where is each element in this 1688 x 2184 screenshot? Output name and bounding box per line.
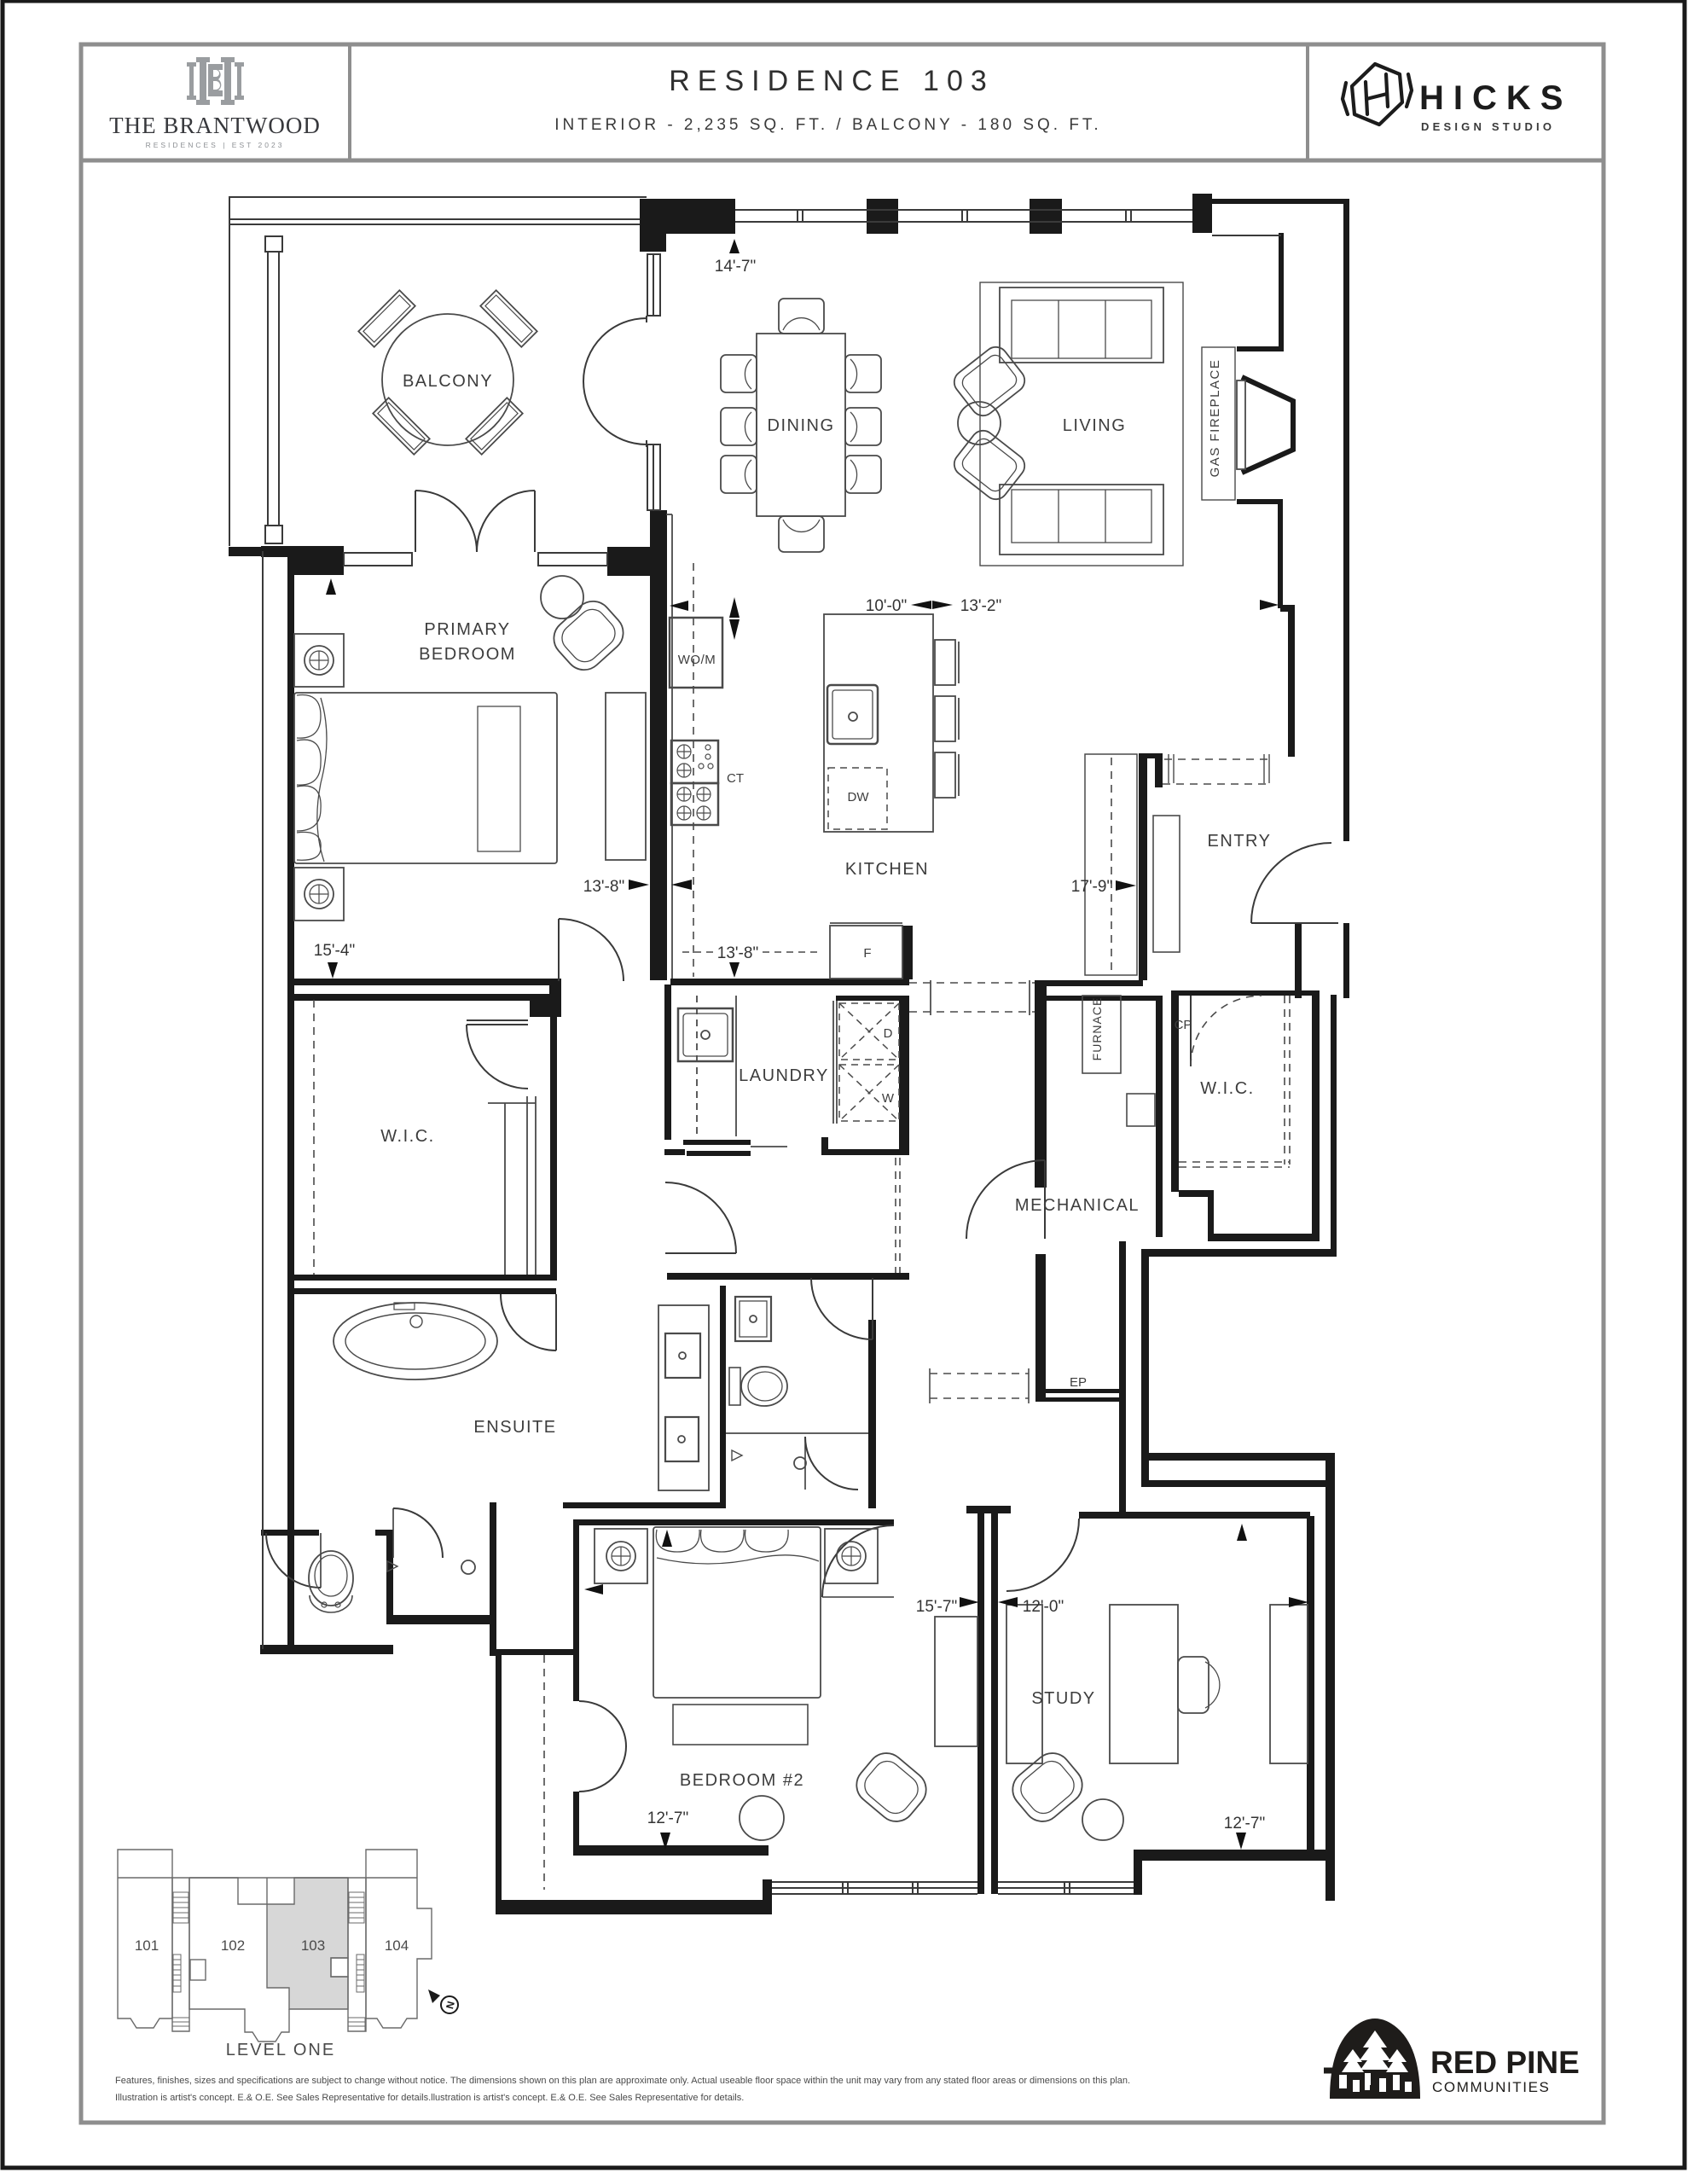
svg-text:12'-7": 12'-7"	[1224, 1815, 1265, 1833]
svg-text:STUDY: STUDY	[1031, 1689, 1095, 1708]
svg-text:RESIDENCE 103: RESIDENCE 103	[669, 65, 995, 97]
svg-text:CT: CT	[727, 771, 744, 786]
svg-text:Illustration is artist's conce: Illustration is artist's concept. E.& O.…	[115, 2093, 744, 2103]
svg-text:101: 101	[135, 1937, 159, 1954]
svg-text:15'-7": 15'-7"	[916, 1598, 957, 1616]
svg-text:BALCONY: BALCONY	[403, 372, 493, 391]
svg-text:13'-8": 13'-8"	[717, 944, 758, 962]
svg-text:DESIGN STUDIO: DESIGN STUDIO	[1421, 120, 1555, 133]
svg-text:W.I.C.: W.I.C.	[380, 1127, 434, 1146]
svg-text:KITCHEN: KITCHEN	[845, 860, 929, 879]
svg-text:BEDROOM: BEDROOM	[419, 645, 516, 664]
svg-text:Features, finishes, sizes and: Features, finishes, sizes and specificat…	[115, 2076, 1130, 2086]
svg-text:DINING: DINING	[768, 416, 835, 435]
svg-text:13'-2": 13'-2"	[960, 597, 1001, 615]
svg-text:LIVING: LIVING	[1063, 416, 1127, 435]
svg-text:102: 102	[221, 1937, 245, 1954]
svg-text:MECHANICAL: MECHANICAL	[1015, 1196, 1140, 1215]
svg-text:WO/M: WO/M	[678, 653, 716, 667]
svg-text:D: D	[884, 1026, 893, 1041]
svg-text:COMMUNITIES: COMMUNITIES	[1432, 2079, 1550, 2095]
svg-text:RED PINE: RED PINE	[1430, 2045, 1580, 2080]
svg-text:GAS FIREPLACE: GAS FIREPLACE	[1208, 359, 1222, 478]
svg-text:14'-7": 14'-7"	[715, 258, 756, 276]
svg-text:FURNACE: FURNACE	[1090, 997, 1104, 1061]
svg-text:LAUNDRY: LAUNDRY	[739, 1066, 829, 1085]
svg-text:103: 103	[301, 1937, 325, 1954]
svg-text:HICKS: HICKS	[1419, 79, 1572, 117]
svg-text:DW: DW	[848, 790, 870, 804]
svg-text:ENTRY: ENTRY	[1208, 832, 1272, 851]
svg-text:13'-8": 13'-8"	[583, 878, 624, 896]
svg-text:EP: EP	[1070, 1375, 1087, 1390]
svg-text:12'-0": 12'-0"	[1023, 1598, 1064, 1616]
svg-text:17'-9": 17'-9"	[1071, 878, 1112, 896]
svg-text:15'-4": 15'-4"	[314, 942, 355, 960]
svg-text:LEVEL ONE: LEVEL ONE	[226, 2041, 335, 2059]
svg-text:PRIMARY: PRIMARY	[424, 620, 510, 639]
svg-text:CP: CP	[1175, 1018, 1192, 1032]
svg-text:ENSUITE: ENSUITE	[473, 1418, 556, 1437]
svg-text:10'-0": 10'-0"	[866, 597, 907, 615]
svg-text:BEDROOM #2: BEDROOM #2	[680, 1771, 804, 1790]
svg-text:W.I.C.: W.I.C.	[1200, 1079, 1254, 1098]
svg-text:THE BRANTWOOD: THE BRANTWOOD	[109, 113, 321, 138]
svg-text:104: 104	[385, 1937, 409, 1954]
svg-text:INTERIOR - 2,235 SQ. FT. / BAL: INTERIOR - 2,235 SQ. FT. / BALCONY - 180…	[554, 116, 1101, 134]
svg-text:F: F	[863, 946, 871, 961]
svg-text:12'-7": 12'-7"	[647, 1809, 688, 1827]
svg-text:W: W	[882, 1091, 895, 1106]
svg-text:RESIDENCES | EST 2023: RESIDENCES | EST 2023	[146, 141, 285, 149]
